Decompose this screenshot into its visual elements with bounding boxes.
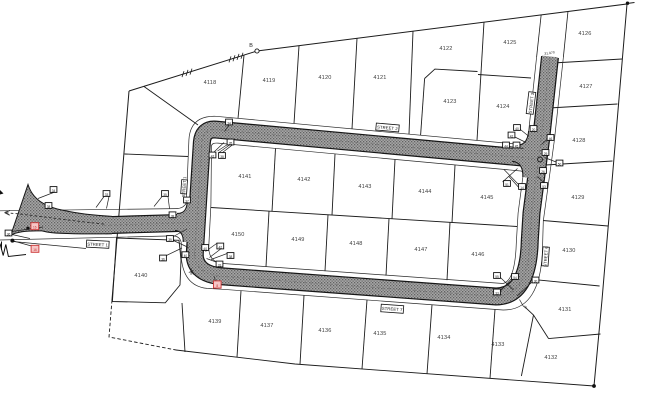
- svg-text:31.970: 31.970: [544, 50, 555, 55]
- svg-text:4137: 4137: [260, 323, 273, 329]
- svg-text:4130: 4130: [562, 248, 575, 254]
- svg-text:4150: 4150: [231, 232, 244, 238]
- svg-text:16: 16: [33, 226, 37, 230]
- svg-text:4132: 4132: [544, 355, 557, 361]
- svg-text:4149: 4149: [291, 237, 304, 243]
- svg-text:44: 44: [504, 145, 508, 149]
- svg-text:4131: 4131: [558, 307, 571, 313]
- svg-text:4144: 4144: [418, 189, 431, 195]
- svg-text:45: 45: [515, 145, 519, 149]
- svg-text:34: 34: [52, 189, 56, 193]
- svg-text:38: 38: [220, 155, 224, 159]
- svg-text:4119: 4119: [263, 78, 276, 84]
- svg-text:4126: 4126: [578, 31, 591, 37]
- svg-text:4140: 4140: [134, 273, 147, 279]
- svg-text:4121: 4121: [373, 75, 386, 81]
- svg-text:50: 50: [558, 163, 562, 167]
- svg-text:33: 33: [105, 193, 109, 197]
- svg-text:30: 30: [534, 280, 538, 284]
- svg-text:4125: 4125: [503, 40, 516, 46]
- svg-text:4145: 4145: [480, 195, 493, 201]
- svg-text:B: B: [249, 43, 253, 49]
- svg-text:38: 38: [171, 214, 175, 218]
- svg-text:55: 55: [495, 275, 499, 279]
- svg-text:4134: 4134: [437, 335, 450, 341]
- svg-text:35: 35: [163, 193, 167, 197]
- svg-text:38: 38: [47, 205, 51, 209]
- svg-text:54: 54: [513, 276, 517, 280]
- svg-text:37: 37: [185, 200, 189, 204]
- svg-text:33: 33: [495, 292, 499, 296]
- svg-text:42: 42: [510, 135, 514, 139]
- svg-text:4146: 4146: [471, 252, 484, 258]
- svg-text:4124: 4124: [496, 104, 509, 110]
- svg-text:42: 42: [211, 155, 215, 159]
- svg-text:14: 14: [520, 186, 524, 190]
- svg-text:4127: 4127: [579, 84, 592, 90]
- svg-text:29: 29: [544, 152, 548, 156]
- svg-text:36: 36: [7, 233, 11, 237]
- svg-text:42: 42: [219, 246, 223, 250]
- svg-text:33: 33: [218, 264, 222, 268]
- svg-text:35: 35: [229, 142, 233, 146]
- svg-text:16: 16: [33, 248, 37, 252]
- svg-text:38: 38: [229, 255, 233, 259]
- svg-text:26: 26: [541, 170, 545, 174]
- svg-text:36: 36: [161, 258, 165, 262]
- svg-text:4129: 4129: [571, 195, 584, 201]
- svg-text:40: 40: [515, 127, 519, 131]
- svg-text:8: 8: [216, 284, 218, 288]
- svg-text:39: 39: [168, 238, 172, 242]
- svg-text:4123: 4123: [443, 99, 456, 105]
- svg-text:4122: 4122: [439, 46, 452, 52]
- svg-text:40: 40: [184, 254, 188, 258]
- svg-text:4120: 4120: [318, 75, 331, 81]
- svg-text:4141: 4141: [238, 174, 251, 180]
- svg-text:4143: 4143: [358, 184, 371, 190]
- svg-text:4139: 4139: [208, 319, 221, 325]
- svg-text:4147: 4147: [414, 247, 427, 253]
- svg-text:20: 20: [532, 128, 536, 132]
- svg-text:4148: 4148: [349, 241, 362, 247]
- svg-text:4128: 4128: [572, 138, 585, 144]
- svg-text:4136: 4136: [318, 328, 331, 334]
- svg-text:4142: 4142: [297, 177, 310, 183]
- svg-text:34: 34: [227, 122, 231, 126]
- svg-text:51: 51: [505, 183, 509, 187]
- svg-text:4118: 4118: [204, 80, 217, 86]
- svg-text:46: 46: [549, 137, 553, 141]
- svg-text:4133: 4133: [491, 342, 504, 348]
- svg-text:53: 53: [542, 185, 546, 189]
- svg-text:40: 40: [203, 247, 207, 251]
- svg-text:4135: 4135: [373, 331, 386, 337]
